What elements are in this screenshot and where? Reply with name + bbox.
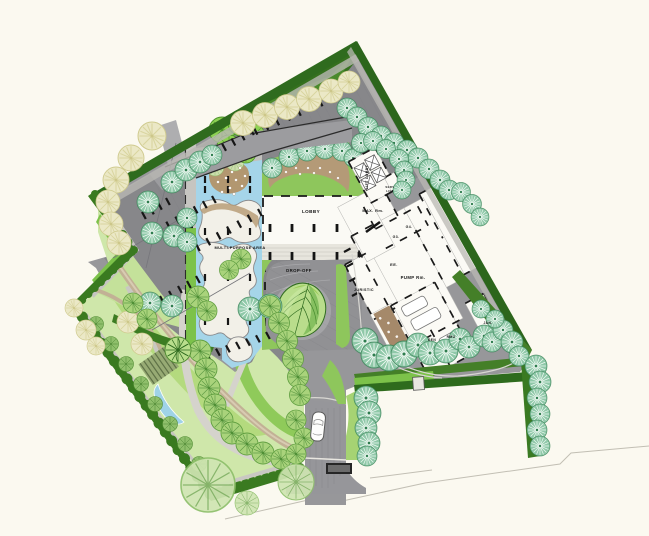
svg-text:PUMP Rm.: PUMP Rm. — [401, 275, 426, 280]
svg-text:LOBBY: LOBBY — [302, 209, 320, 214]
svg-text:RMU: RMU — [447, 335, 456, 339]
svg-text:MULTI-PURPOSE AREA: MULTI-PURPOSE AREA — [214, 245, 265, 250]
svg-text:GEN: GEN — [428, 338, 437, 342]
svg-text:LIFT LOBBY: LIFT LOBBY — [365, 164, 369, 189]
svg-text:MAX. Rm.: MAX. Rm. — [362, 208, 383, 213]
svg-text:LIFT: LIFT — [386, 189, 394, 193]
svg-text:DROP-OFF: DROP-OFF — [286, 268, 312, 273]
svg-text:JAN.: JAN. — [483, 321, 492, 325]
svg-text:G3.: G3. — [393, 235, 400, 239]
svg-text:EE.: EE. — [390, 262, 398, 267]
svg-text:G4.: G4. — [406, 225, 413, 229]
svg-text:JURISTIC: JURISTIC — [354, 288, 374, 292]
